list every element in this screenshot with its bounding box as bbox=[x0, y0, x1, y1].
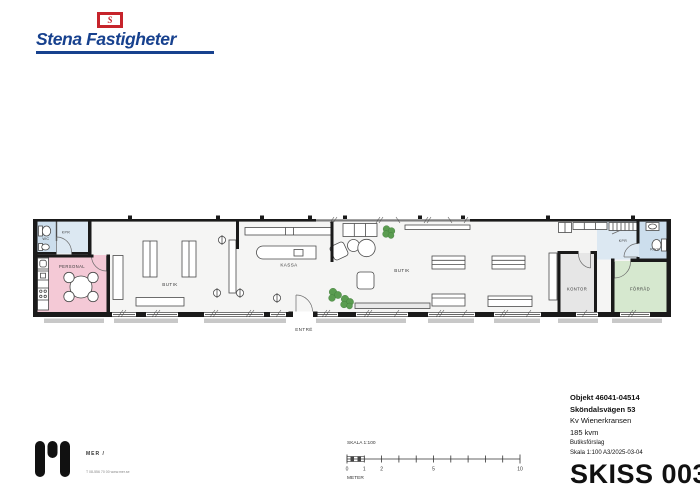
scale-and-date: Skala 1:100 A3/2025-03-04 bbox=[570, 448, 698, 458]
scale-tick-0: 0 bbox=[346, 467, 349, 473]
kassa-back-shelf bbox=[245, 228, 333, 236]
title-block: Objekt 46041-04514 Sköndalsvägen 53 Kv W… bbox=[570, 392, 698, 490]
area-size: 185 kvm bbox=[570, 427, 698, 439]
tall-fixture bbox=[229, 240, 236, 293]
entrance-label: ENTRÉ bbox=[295, 326, 313, 332]
room-label-butik-right: BUTIK bbox=[394, 268, 410, 273]
wardrobe bbox=[113, 256, 123, 300]
scale-tick-1: 1 bbox=[363, 467, 366, 473]
exterior-paving bbox=[44, 319, 662, 324]
sofa bbox=[343, 224, 377, 237]
block-name: Kv Wienerkransen bbox=[570, 415, 698, 427]
room-label-wc: WC bbox=[42, 237, 49, 241]
room-label-butik-left: BUTIK bbox=[162, 282, 178, 287]
rwc-sink-icon bbox=[646, 223, 659, 231]
window-sill bbox=[405, 225, 470, 230]
toilet-icon bbox=[39, 226, 51, 236]
room-label-kpr-left: KPR bbox=[62, 231, 70, 235]
room-label-forrad: FÖRRÅD bbox=[630, 287, 650, 292]
square-table bbox=[357, 272, 374, 289]
room-kontor bbox=[560, 253, 594, 312]
scale-title: SKALA 1:100 bbox=[347, 440, 376, 446]
room-label-kassa: KASSA bbox=[280, 263, 298, 268]
window-bench bbox=[355, 303, 430, 309]
room-label-kontor: KONTOR bbox=[567, 287, 587, 292]
scale-tick-2: 2 bbox=[380, 467, 383, 473]
proposal-type: Butiksförslag bbox=[570, 438, 698, 448]
sink-icon bbox=[39, 244, 50, 251]
window-display bbox=[136, 298, 184, 307]
sketch-number: SKISS 003 bbox=[570, 459, 698, 490]
object-number: Objekt 46041-04514 bbox=[570, 392, 698, 404]
scale-unit-label: METER bbox=[347, 475, 364, 481]
mer-contact-line: T 08-556 70 00 www.mer.se bbox=[86, 470, 130, 474]
scale-tick-5: 5 bbox=[432, 467, 435, 473]
room-label-personal: PERSONAL bbox=[59, 264, 85, 269]
scale-bar: SKALA 1:100 0 bbox=[346, 440, 523, 481]
scale-tick-10: 10 bbox=[517, 467, 523, 473]
address: Sköndalsvägen 53 bbox=[570, 404, 698, 416]
drawing-sheet: S Stena Fastigheter bbox=[0, 0, 700, 494]
mer-logo-icon bbox=[35, 441, 70, 477]
kassa-counter bbox=[257, 246, 317, 259]
room-label-rwc: RWC bbox=[650, 248, 660, 252]
mer-firm-name: MER / bbox=[86, 451, 130, 457]
room-label-kpr-right: KPR bbox=[619, 239, 627, 243]
kitchenette bbox=[38, 257, 49, 310]
mer-logo-text: MER / T 08-556 70 00 www.mer.se bbox=[86, 451, 130, 474]
